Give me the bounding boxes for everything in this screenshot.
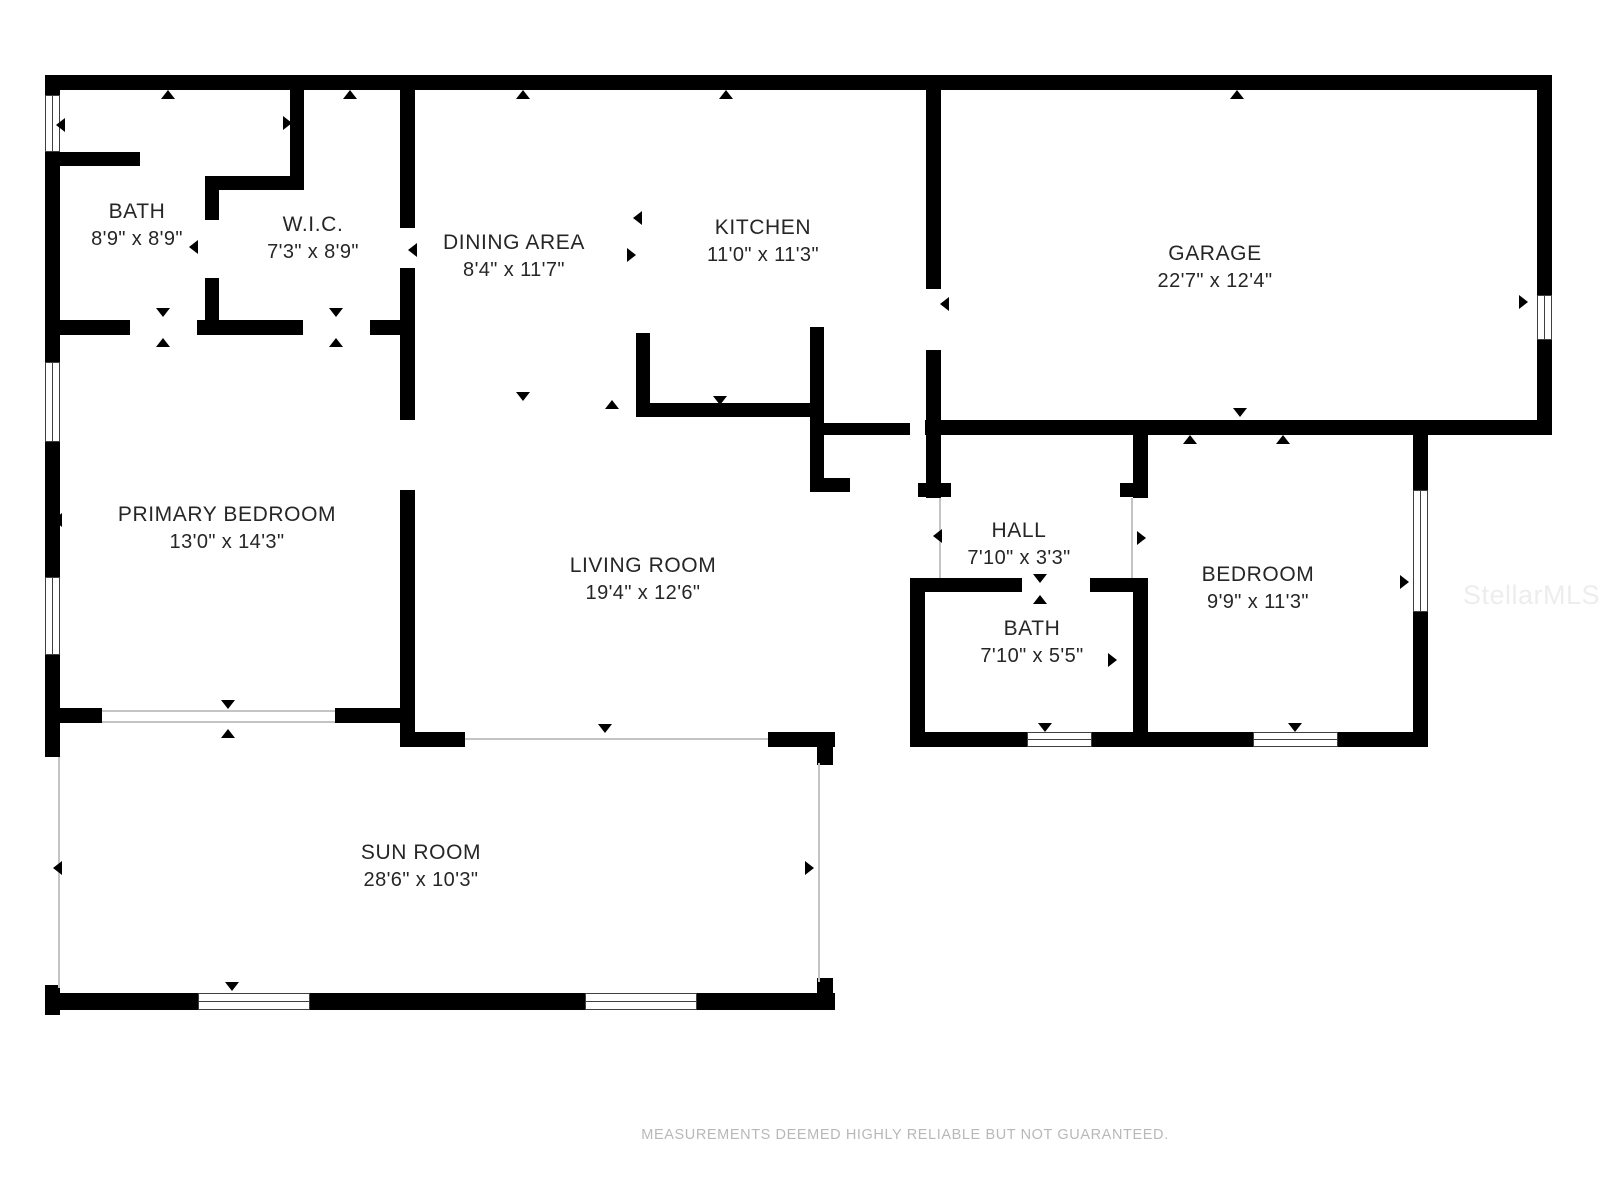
wall: [910, 578, 925, 747]
wall: [400, 268, 415, 420]
room-dimensions: 22'7" x 12'4": [1158, 268, 1273, 294]
room-name: W.I.C.: [267, 211, 359, 239]
thin-wall: [102, 710, 335, 712]
door-direction-marker: [1183, 435, 1197, 444]
wall: [1092, 732, 1152, 747]
window: [45, 577, 60, 655]
door-direction-marker: [189, 240, 198, 254]
room-dimensions: 7'10" x 3'3": [967, 545, 1070, 571]
door-direction-marker: [516, 90, 530, 99]
wall: [45, 993, 835, 1010]
wall: [1537, 90, 1552, 433]
room-dimensions: 28'6" x 10'3": [361, 867, 481, 893]
thin-wall: [465, 738, 768, 740]
door-direction-marker: [408, 243, 417, 257]
window-pane-line: [52, 578, 54, 654]
wall: [45, 320, 130, 335]
door-direction-marker: [1230, 90, 1244, 99]
door-direction-marker: [1276, 435, 1290, 444]
wall: [1133, 433, 1148, 498]
door-direction-marker: [1137, 531, 1146, 545]
window-pane-line: [1028, 739, 1091, 741]
footer-disclaimer: MEASUREMENTS DEEMED HIGHLY RELIABLE BUT …: [641, 1127, 1168, 1143]
thin-wall: [818, 763, 820, 982]
door-direction-marker: [713, 396, 727, 405]
door-direction-marker: [156, 308, 170, 317]
door-direction-marker: [221, 729, 235, 738]
door-direction-marker: [225, 982, 239, 991]
door-direction-marker: [913, 626, 922, 640]
door-direction-marker: [53, 513, 62, 527]
room-name: BATH: [91, 198, 183, 226]
room-dimensions: 8'9" x 8'9": [91, 226, 183, 252]
wall: [925, 420, 1552, 435]
window: [45, 362, 60, 442]
room-name: DINING AREA: [443, 229, 585, 257]
wall: [810, 478, 850, 492]
wall: [1090, 578, 1145, 592]
door-direction-marker: [156, 338, 170, 347]
door-direction-marker: [1400, 575, 1409, 589]
door-direction-marker: [56, 118, 65, 132]
window: [1027, 732, 1092, 747]
wall: [205, 190, 219, 220]
room-dimensions: 7'3" x 8'9": [267, 239, 359, 265]
door-direction-marker: [940, 297, 949, 311]
window-pane-line: [1544, 296, 1546, 339]
room-dimensions: 11'0" x 11'3": [707, 242, 819, 268]
wall: [60, 152, 140, 166]
door-direction-marker: [161, 90, 175, 99]
room-label: DINING AREA8'4" x 11'7": [443, 229, 585, 283]
wall: [820, 423, 910, 435]
room-dimensions: 8'4" x 11'7": [443, 257, 585, 283]
room-name: KITCHEN: [707, 214, 819, 242]
wall: [45, 75, 1552, 90]
room-label: HALL7'10" x 3'3": [967, 517, 1070, 571]
door-direction-marker: [221, 700, 235, 709]
room-dimensions: 7'10" x 5'5": [980, 643, 1083, 669]
wall: [335, 708, 415, 723]
door-direction-marker: [400, 491, 409, 505]
wall: [1133, 578, 1148, 747]
door-direction-marker: [627, 248, 636, 262]
floor-plan: StellarMLS MEASUREMENTS DEEMED HIGHLY RE…: [0, 0, 1600, 1200]
room-dimensions: 9'9" x 11'3": [1202, 589, 1315, 615]
door-direction-marker: [633, 211, 642, 225]
door-direction-marker: [1233, 408, 1247, 417]
room-label: W.I.C.7'3" x 8'9": [267, 211, 359, 265]
room-label: BATH7'10" x 5'5": [980, 615, 1083, 669]
wall: [1120, 483, 1133, 497]
door-direction-marker: [329, 338, 343, 347]
wall: [926, 350, 941, 498]
room-dimensions: 13'0" x 14'3": [118, 529, 336, 555]
wall: [400, 90, 415, 228]
door-direction-marker: [933, 529, 942, 543]
door-direction-marker: [719, 90, 733, 99]
thin-wall: [1131, 498, 1133, 578]
window-pane-line: [1254, 739, 1337, 741]
wall: [768, 732, 835, 747]
door-direction-marker: [329, 308, 343, 317]
room-name: LIVING ROOM: [570, 552, 717, 580]
room-label: LIVING ROOM19'4" x 12'6": [570, 552, 717, 606]
door-direction-marker: [53, 861, 62, 875]
window-pane-line: [1420, 491, 1422, 611]
room-name: BATH: [980, 615, 1083, 643]
room-label: KITCHEN11'0" x 11'3": [707, 214, 819, 268]
wall: [636, 403, 824, 417]
window: [1253, 732, 1338, 747]
door-direction-marker: [605, 400, 619, 409]
door-direction-marker: [1033, 574, 1047, 583]
wall: [925, 578, 1022, 592]
door-direction-marker: [516, 392, 530, 401]
room-label: PRIMARY BEDROOM13'0" x 14'3": [118, 501, 336, 555]
door-direction-marker: [1519, 295, 1528, 309]
wall: [1148, 732, 1253, 747]
window-pane-line: [586, 1001, 696, 1003]
door-direction-marker: [343, 90, 357, 99]
window: [1413, 490, 1428, 612]
wall: [400, 732, 465, 747]
window: [1537, 295, 1552, 340]
window-pane-line: [199, 1001, 309, 1003]
wall: [197, 320, 303, 335]
wall: [910, 732, 1027, 747]
wall: [290, 90, 304, 190]
watermark: StellarMLS: [1463, 580, 1600, 611]
wall: [810, 327, 824, 490]
door-direction-marker: [1108, 653, 1117, 667]
wall: [918, 483, 951, 497]
door-direction-marker: [1033, 595, 1047, 604]
window-pane-line: [52, 363, 54, 441]
window: [585, 993, 697, 1010]
room-name: GARAGE: [1158, 240, 1273, 268]
wall: [817, 978, 833, 1010]
door-direction-marker: [805, 861, 814, 875]
room-label: BATH8'9" x 8'9": [91, 198, 183, 252]
wall: [926, 90, 941, 289]
door-direction-marker: [283, 116, 292, 130]
window-pane-line: [52, 96, 54, 151]
room-name: HALL: [967, 517, 1070, 545]
door-direction-marker: [1288, 723, 1302, 732]
room-name: PRIMARY BEDROOM: [118, 501, 336, 529]
thin-wall: [102, 721, 335, 723]
room-label: GARAGE22'7" x 12'4": [1158, 240, 1273, 294]
room-label: SUN ROOM28'6" x 10'3": [361, 839, 481, 893]
door-direction-marker: [1038, 723, 1052, 732]
door-direction-marker: [598, 724, 612, 733]
window: [198, 993, 310, 1010]
room-label: BEDROOM9'9" x 11'3": [1202, 561, 1315, 615]
wall: [205, 176, 304, 190]
room-name: SUN ROOM: [361, 839, 481, 867]
room-dimensions: 19'4" x 12'6": [570, 580, 717, 606]
wall: [45, 708, 102, 723]
room-name: BEDROOM: [1202, 561, 1315, 589]
